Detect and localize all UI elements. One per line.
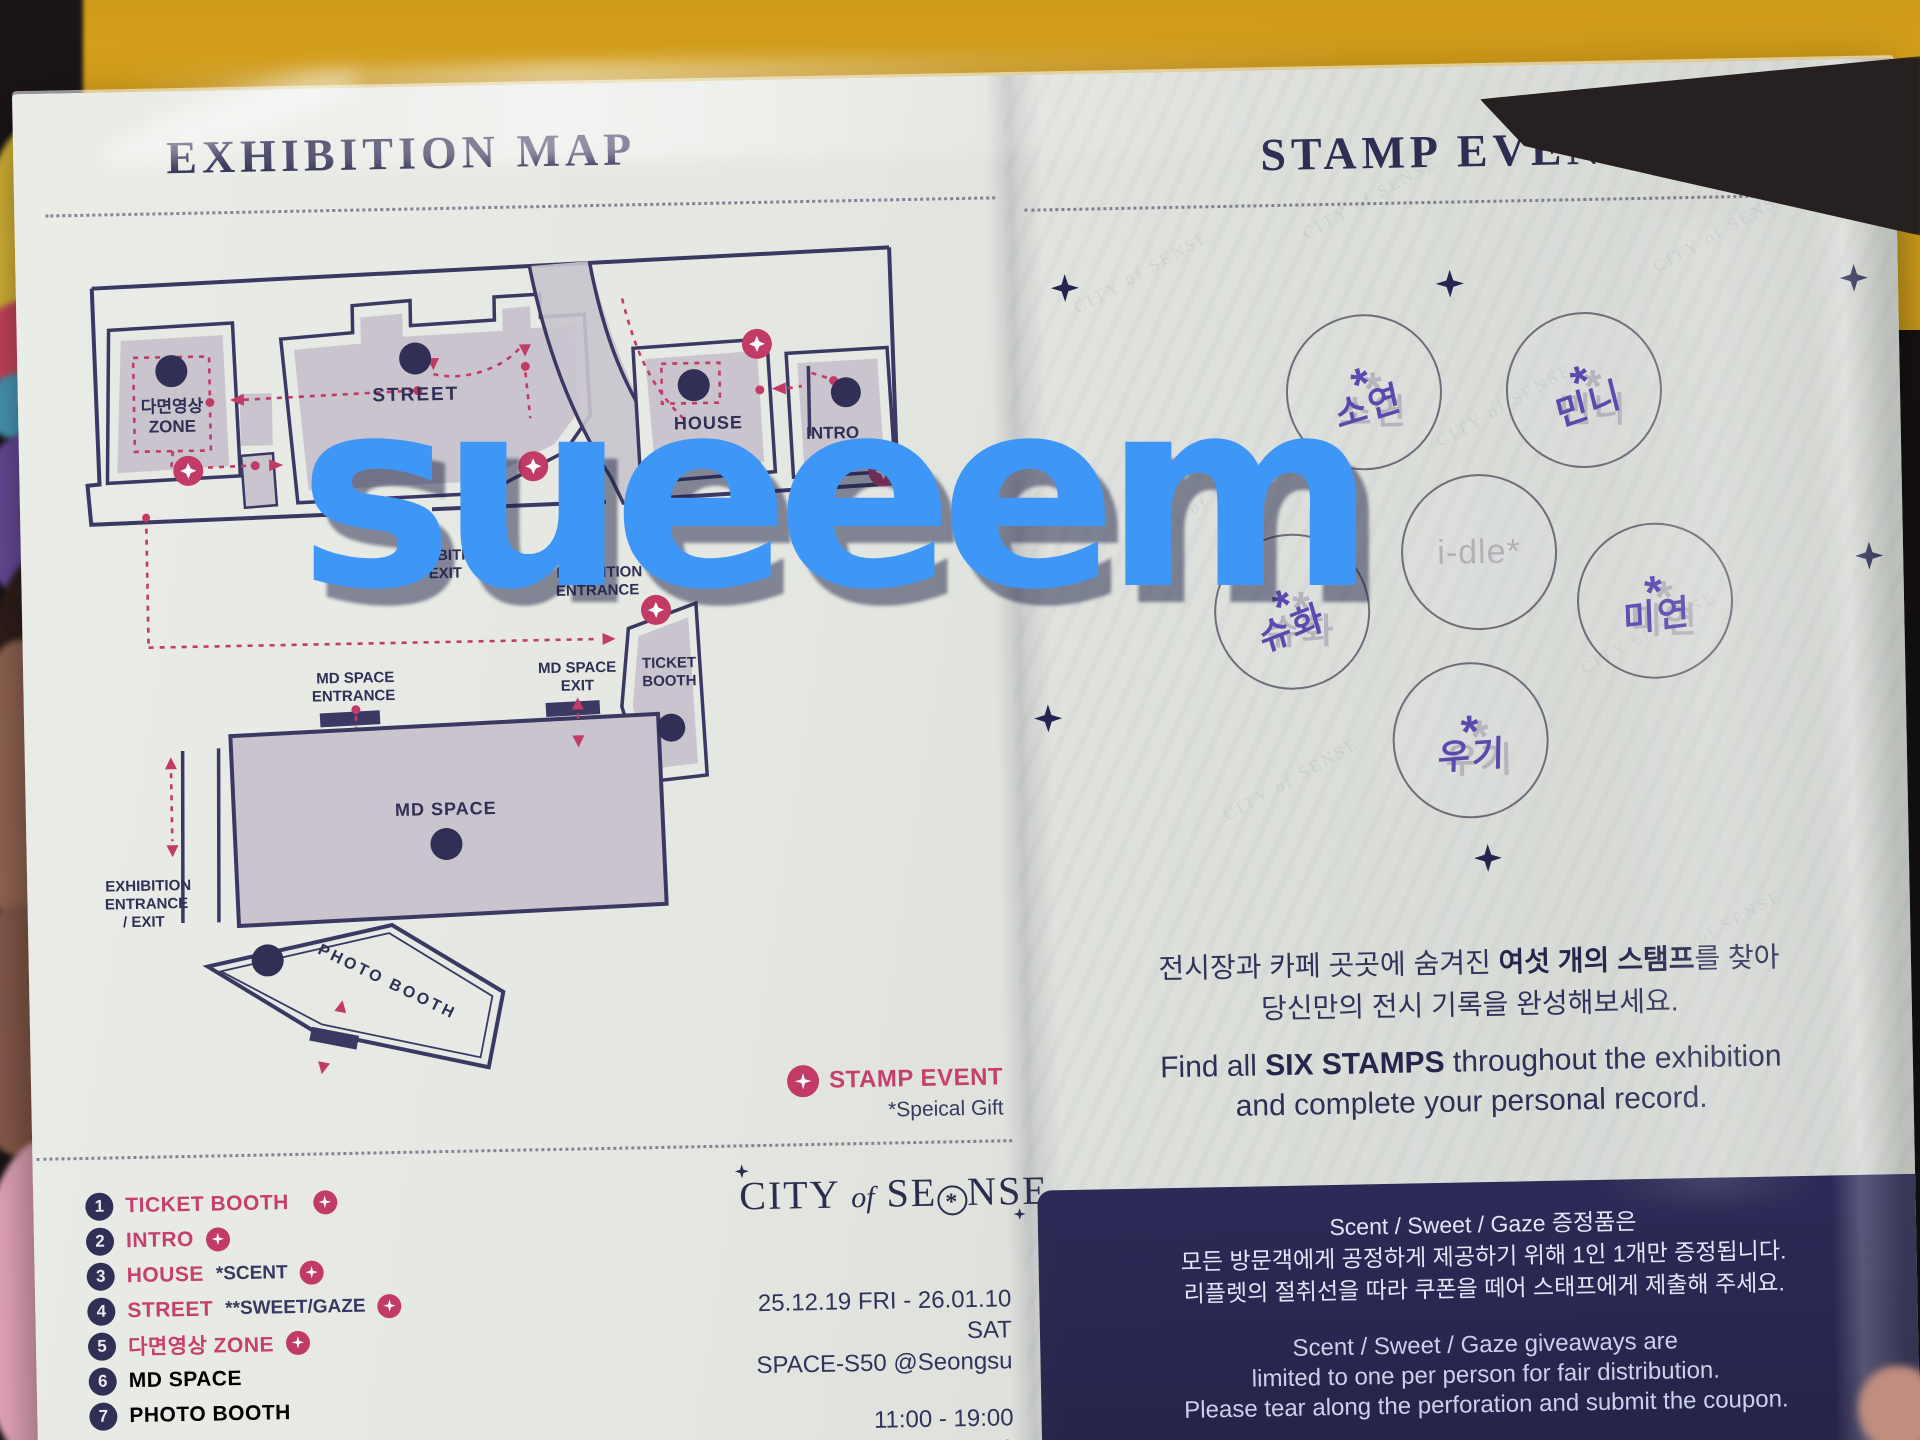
city-of-sense-logo: CITY of SE*NSE [739,1167,1020,1219]
stamp-circle-shuhua: *슈화 *슈화 [1213,532,1372,691]
notice-english: Scent / Sweet / Gaze giveaways are limit… [1040,1322,1920,1429]
stamp-event-description: 전시장과 카페 곳곳에 숨겨진 여섯 개의 스탬프를 찾아 당신만의 전시 기록… [1049,934,1892,1130]
stamp-event-note-gift: *Speical Gift [731,1096,1003,1125]
svg-text:4: 4 [410,348,420,368]
leg­end-label: INTRO [126,1227,194,1252]
legend-row: 7 PHOTO BOOTH [89,1393,404,1434]
sparkle-icon [1474,844,1503,873]
legend-row: 3 HOUSE *SCENT [86,1253,401,1294]
legend-row: 1 TICKET BOOTH [85,1183,400,1224]
perforation-line-top-left [45,196,995,217]
watermark-pattern-text: CITY of SENSE [1070,227,1213,319]
svg-text:MD SPACE: MD SPACE [395,798,497,820]
legend-number-badge: 3 [86,1262,115,1291]
legend-row: 6 MD SPACE [88,1358,403,1399]
svg-text:EXHIBITION: EXHIBITION [402,546,488,565]
legend-note: *SCENT [216,1262,288,1285]
svg-text:EXIT: EXIT [428,565,462,583]
svg-text:/ EXIT: / EXIT [123,913,165,931]
watermark-pattern-text: CITY of SENSE [1220,734,1363,826]
stamp-badge-icon [377,1293,401,1317]
legend-row: 5 다면영상 ZONE [88,1323,403,1364]
svg-text:5: 5 [166,361,176,381]
svg-text:다면영상: 다면영상 [141,397,204,417]
legend-number-badge: 1 [85,1192,114,1221]
leaflet-paper: CITY of SENSE CITY of SENSE CITY of SENS… [12,58,1920,1440]
logo-text: CITY [739,1172,840,1219]
legend-number-badge: 4 [87,1297,116,1326]
stamp-circle-yuqi: *우기 *우기 [1391,661,1550,820]
stamp-circle-minnie: *민니 *민니 [1504,311,1663,470]
photo-of-exhibition-leaflet: CITY of SENSE CITY of SENSE CITY of SENS… [0,0,1920,1440]
stamp-badge-icon [286,1330,310,1354]
legend-label: TICKET BOOTH [125,1191,289,1218]
left-page-title: EXHIBITION MAP [151,122,652,185]
stamp-badge-icon [206,1227,230,1251]
exhibition-schedule: 25.12.19 FRI - 26.01.10 SAT SPACE-S50 @S… [711,1283,1015,1440]
sparkle-icon [1855,541,1884,570]
svg-text:EXHIBITION: EXHIBITION [105,877,191,896]
stamp-circle-soyeon: *소연 *소연 [1284,313,1443,472]
svg-text:HOUSE: HOUSE [674,412,743,433]
logo-text-of: of [851,1181,875,1214]
logo-text: SE [886,1170,938,1216]
sparkle-icon [1034,704,1063,733]
legend-note: **SWEET/GAZE [225,1295,366,1320]
legend-number-badge: 2 [86,1227,115,1256]
svg-text:EXHIBITION: EXHIBITION [556,563,642,582]
exhibition-dates: 25.12.19 FRI - 26.01.10 SAT [711,1283,1012,1351]
description-korean: 전시장과 카페 곳곳에 숨겨진 여섯 개의 스탬프를 찾아 당신만의 전시 기록… [1049,934,1890,1034]
stamp-circle-idle: i-dle* [1400,473,1559,632]
description-english: Find all SIX STAMPS throughout the exhib… [1051,1034,1892,1130]
svg-text:ZONE: ZONE [149,417,197,437]
legend-number-badge: 5 [88,1332,117,1361]
perforation-line-coupon [36,1139,1012,1161]
printed-idle-label: i-dle* [1402,475,1557,630]
right-page-title: STAMP EVENT [1250,121,1651,182]
svg-text:ENTRANCE: ENTRANCE [556,581,640,600]
exhibition-venue: SPACE-S50 @Seongsu [712,1345,1013,1382]
photo-booth-room [207,923,505,1073]
legend-number-badge: 6 [88,1367,117,1396]
stamp-badge-icon [787,1065,820,1098]
stamp-circle-miyeon: *미연 *미연 [1576,521,1735,680]
exhibition-floorplan: 5 다면영상 ZONE 4 STREET 3 HOUSE 2 INTRO TIC… [61,231,938,1127]
handwritten-stamp: *미연 [1570,516,1740,686]
svg-text:BOOTH: BOOTH [642,672,696,690]
svg-text:3: 3 [689,375,699,395]
svg-text:1: 1 [667,720,676,737]
map-legend: 1 TICKET BOOTH 2 INTRO 3 HOUSE *SCENT 4 … [85,1183,404,1434]
svg-text:MD SPACE: MD SPACE [316,669,394,687]
stamp-event-note: STAMP EVENT *Speical Gift [731,1061,1004,1125]
watermark-pattern-text: CITY of SENSE [1135,455,1278,547]
svg-text:2: 2 [841,383,851,402]
logo-asterisk-mark: * [937,1185,968,1216]
giveaway-notice-box: Scent / Sweet / Gaze 증정품은 모든 방문객에게 공정하게 … [1037,1174,1920,1440]
zone-3-room [633,339,776,482]
stamp-badge-icon [299,1260,323,1284]
sparkle-icon [1840,264,1869,293]
legend-row: 2 INTRO [86,1218,401,1259]
svg-text:ENTRANCE: ENTRANCE [312,687,396,706]
perforation-line-top-right [1024,192,1874,211]
svg-text:MD SPACE: MD SPACE [538,659,616,677]
legend-row: 4 STREET **SWEET/GAZE [87,1288,402,1329]
legend-label: 다면영상 ZONE [128,1328,275,1361]
svg-text:6: 6 [441,834,451,854]
legend-number-badge: 7 [89,1402,118,1431]
stamp-badge-icon [313,1190,337,1214]
sparkle-icon [1051,274,1080,303]
legend-label: HOUSE [126,1262,204,1287]
svg-text:INTRO: INTRO [806,423,859,443]
handwritten-stamp: *우기 [1389,659,1551,821]
svg-text:EXIT: EXIT [561,677,595,695]
sparkle-icon [1436,269,1465,298]
svg-text:7: 7 [262,950,272,970]
notice-korean: Scent / Sweet / Gaze 증정품은 모든 방문객에게 공정하게 … [1038,1200,1920,1313]
legend-label: STREET [127,1297,213,1323]
svg-text:TICKET: TICKET [642,654,696,672]
svg-text:STREET: STREET [372,384,459,407]
stamp-event-note-title: STAMP EVENT [829,1063,1003,1094]
svg-text:ENTRANCE: ENTRANCE [105,895,189,914]
legend-label: PHOTO BOOTH [129,1401,291,1428]
legend-label: MD SPACE [128,1367,242,1393]
